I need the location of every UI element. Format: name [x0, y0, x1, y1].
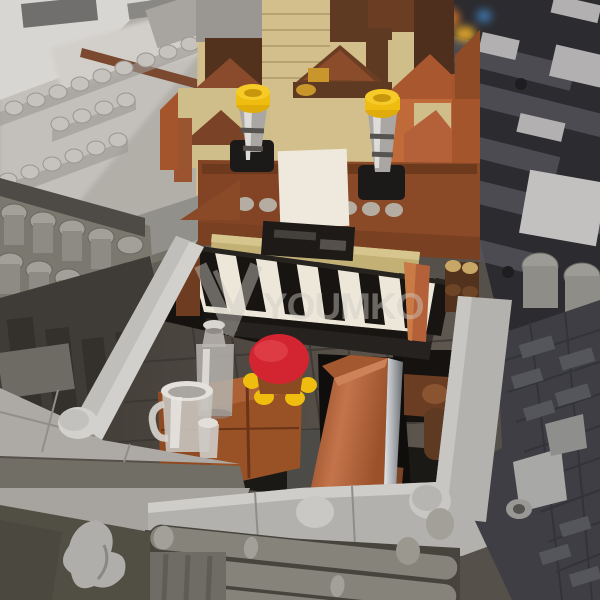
svg-text:YOUMKO: YOUMKO — [263, 286, 424, 327]
